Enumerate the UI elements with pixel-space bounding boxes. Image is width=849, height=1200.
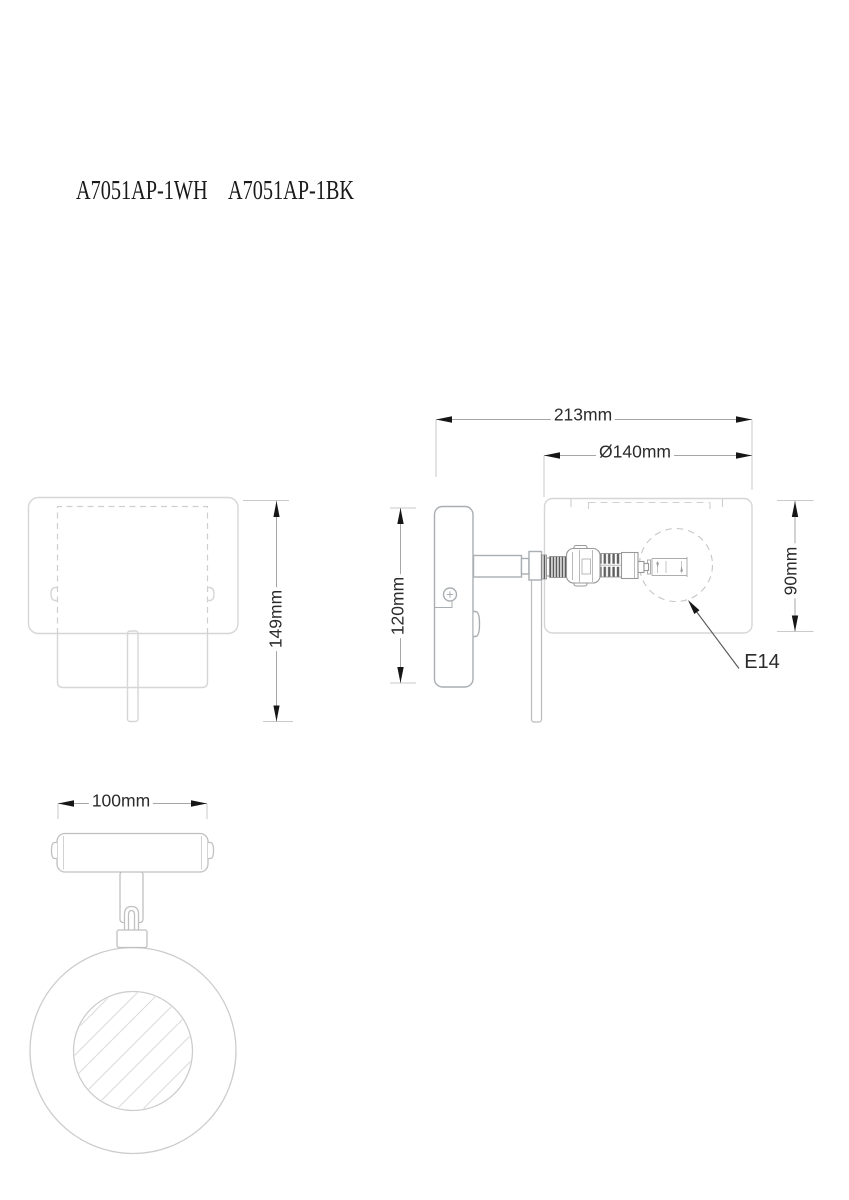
dim-label-plate-height: 120mm [388,574,407,638]
socket-body [567,549,601,584]
dim-label-plate-width: 100mm [89,791,153,810]
dim-label-shade-height: 90mm [781,544,800,599]
front-shade-visible-outline [58,634,208,688]
front-stem [128,631,139,722]
front-view [29,498,294,722]
side-shade-inner-ring [589,503,711,510]
dim-label-front-height: 149mm [266,587,285,651]
arm-connector [522,559,530,575]
dim-label-shade-diameter: Ø140mm [596,442,674,461]
plate-end-cap-left [52,843,58,859]
e14-leader [688,600,739,669]
model-number-black: A7051AP-1BK [228,177,354,204]
side-stem [532,579,542,722]
threaded-nipple [550,557,567,578]
joint-block [529,552,542,581]
lamp-holder-assembly [542,546,649,587]
dimension-213mm [436,416,752,490]
side-arm [474,556,522,578]
bottom-view [6,800,254,1172]
front-backplate [29,498,239,634]
dim-label-depth: 213mm [551,405,615,424]
plate-end-cap-right [208,843,214,859]
model-number-white: A7051AP-1WH [76,177,208,204]
front-shade-hidden-outline [58,507,208,635]
pivot-block [117,930,147,948]
bulb-collar [622,553,639,579]
side-switch-tab [474,612,480,637]
bulb-filament [648,557,688,577]
bottom-mount-plate [57,834,208,873]
side-view [390,416,814,722]
front-shade-clip-right [208,588,215,601]
spec-sheet-page: A7051AP-1WH A7051AP-1BK 213mm Ø140mm 149… [0,0,849,1200]
socket-type-label: E14 [741,651,783,673]
front-shade-clip-left [51,588,58,601]
